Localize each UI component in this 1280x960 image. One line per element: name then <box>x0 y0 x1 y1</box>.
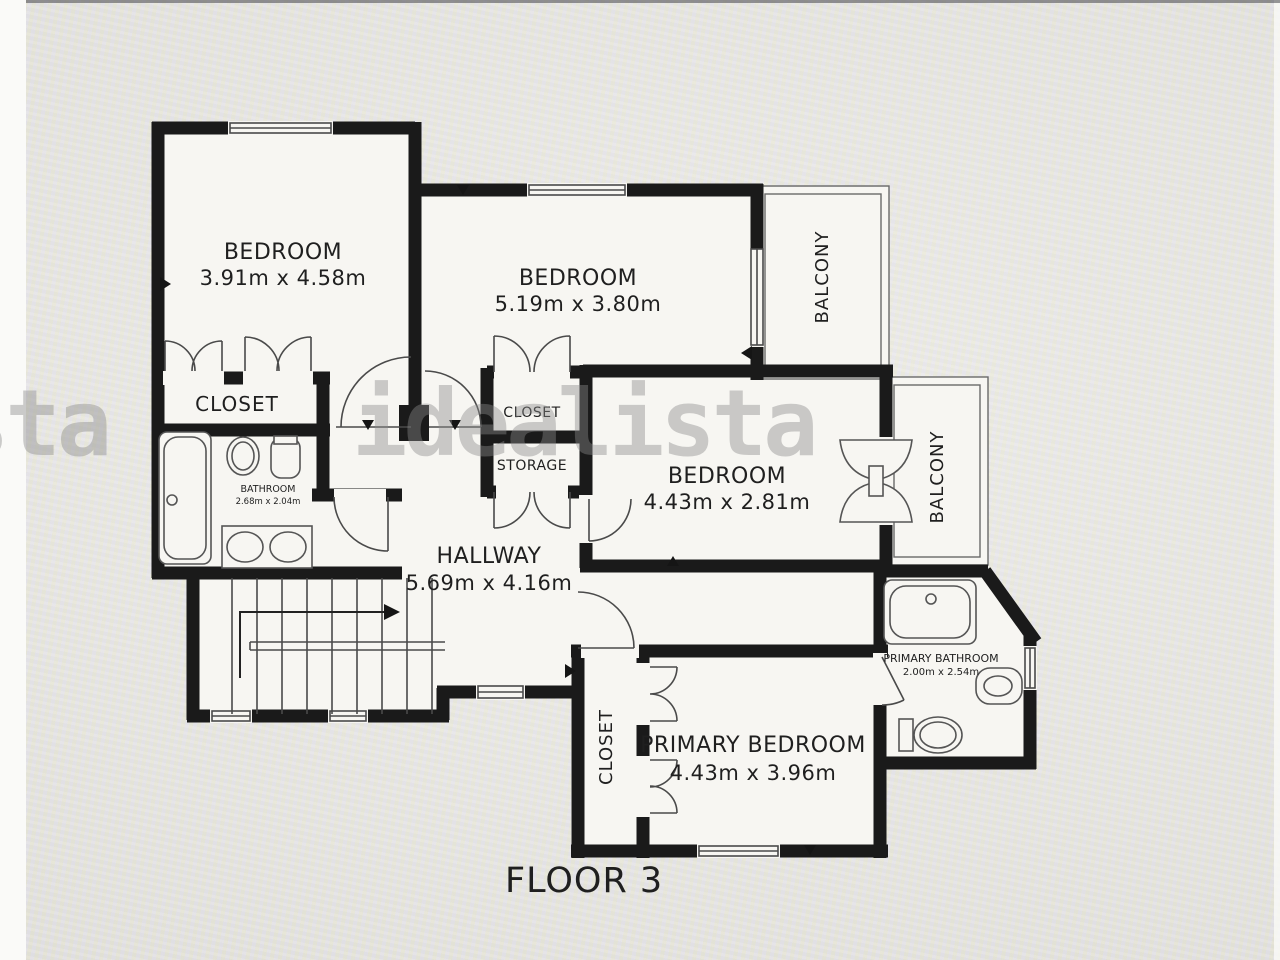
room-label-hallway: HALLWAY <box>437 544 542 569</box>
room-label-bedroom-1: BEDROOM <box>224 240 342 265</box>
room-dims-bedroom-2: 5.19m x 3.80m <box>495 292 662 316</box>
room-label-bathroom: BATHROOM <box>241 484 296 495</box>
floor-primary-bedroom <box>571 560 883 851</box>
room-dims-bedroom-3: 4.43m x 2.81m <box>644 490 811 514</box>
primary-sink <box>976 668 1022 704</box>
label-closet-primary: CLOSET <box>596 709 617 785</box>
room-label-bedroom-2: BEDROOM <box>519 266 637 291</box>
room-dims-bathroom: 2.68m x 2.04m <box>236 497 301 507</box>
primary-toilet <box>899 717 962 753</box>
primary-bathtub <box>884 580 976 644</box>
room-dims-primary-bathroom: 2.00m x 2.54m <box>903 667 979 678</box>
room-dims-hallway: 5.69m x 4.16m <box>406 571 573 595</box>
floor-number-label: FLOOR 3 <box>505 861 663 901</box>
room-dims-primary-bedroom: 4.43m x 3.96m <box>670 761 837 785</box>
toilet <box>227 437 259 475</box>
watermark-text: idealista <box>352 370 815 477</box>
room-label-primary-bedroom: PRIMARY BEDROOM <box>640 733 866 758</box>
label-balcony-top: BALCONY <box>812 231 833 324</box>
bathtub <box>159 432 211 564</box>
double-sink <box>222 526 312 568</box>
floor-plan-photo: BEDROOM 3.91m x 4.58m BEDROOM 5.19m x 3.… <box>0 0 1280 960</box>
room-label-primary-bathroom: PRIMARY BATHROOM <box>883 652 998 665</box>
watermark-fragment: sta <box>0 370 108 477</box>
floor-plan: BEDROOM 3.91m x 4.58m BEDROOM 5.19m x 3.… <box>0 0 1280 960</box>
label-balcony-right: BALCONY <box>927 431 948 524</box>
label-closet-left: CLOSET <box>195 392 279 416</box>
bidet <box>271 436 300 478</box>
room-dims-bedroom-1: 3.91m x 4.58m <box>200 266 367 290</box>
watermark: sta idealista <box>0 370 815 477</box>
